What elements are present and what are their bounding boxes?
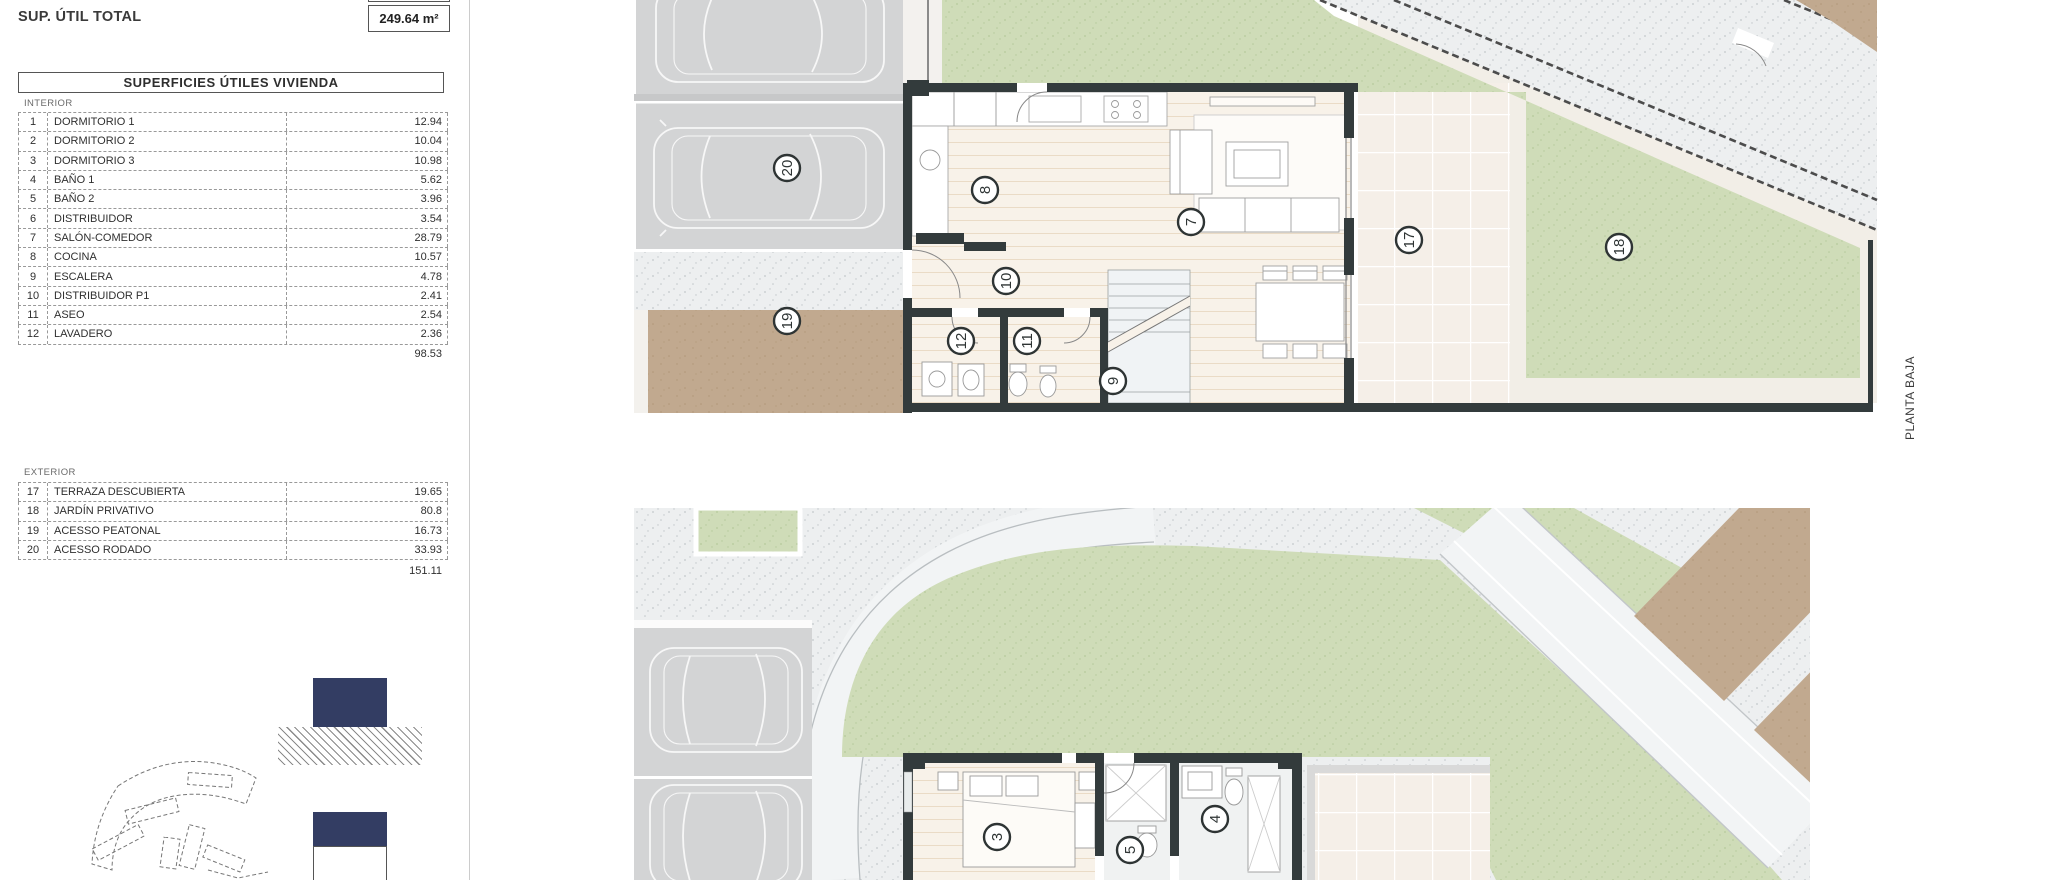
legend-elevation-block xyxy=(313,812,387,847)
row-label: ACESSO PEATONAL xyxy=(48,522,287,540)
row-label: DORMITORIO 2 xyxy=(48,132,287,150)
pavement-strip xyxy=(634,252,903,310)
green-patch xyxy=(696,508,800,554)
svg-text:17: 17 xyxy=(1401,232,1418,249)
sup-construida-label: SUP. CONSTRUIDA VIVIENDA xyxy=(18,0,230,3)
table-row: 5BAÑO 23.96 xyxy=(18,190,448,209)
panel-divider xyxy=(469,0,470,880)
room-marker: 11 xyxy=(1014,328,1040,354)
pedestrian-path xyxy=(634,310,903,413)
room-marker: 10 xyxy=(993,268,1019,294)
row-label: ESCALERA xyxy=(48,267,287,285)
legend-ground-hatch xyxy=(278,727,422,765)
room-marker: 18 xyxy=(1606,234,1632,260)
row-label: COCINA xyxy=(48,248,287,266)
room-marker: 7 xyxy=(1178,209,1204,235)
interior-section-label: INTERIOR xyxy=(24,98,73,109)
svg-text:8: 8 xyxy=(977,186,994,194)
row-number: 10 xyxy=(18,287,48,305)
svg-text:19: 19 xyxy=(779,313,796,330)
row-label: SALÓN-COMEDOR xyxy=(48,229,287,247)
svg-text:5: 5 xyxy=(1122,846,1139,854)
row-number: 5 xyxy=(18,190,48,208)
exterior-subtotal: 151.11 xyxy=(18,561,448,577)
svg-text:11: 11 xyxy=(1019,333,1036,349)
svg-text:10: 10 xyxy=(998,273,1015,290)
row-number: 7 xyxy=(18,229,48,247)
row-number: 11 xyxy=(18,306,48,324)
exterior-section-label: EXTERIOR xyxy=(24,467,76,478)
table-title: SUPERFICIES ÚTILES VIVIENDA xyxy=(18,72,444,93)
row-label: TERRAZA DESCUBIERTA xyxy=(48,483,287,501)
table-row: 2DORMITORIO 210.04 xyxy=(18,132,448,151)
row-label: ASEO xyxy=(48,306,287,324)
row-number: 1 xyxy=(18,113,48,131)
room-marker: 20 xyxy=(774,155,800,181)
row-value: 12.94 xyxy=(287,113,448,131)
parking-area xyxy=(634,0,903,252)
interior-subtotal: 98.53 xyxy=(18,344,448,360)
row-value: 4.78 xyxy=(287,267,448,285)
parking-area xyxy=(634,620,812,880)
row-number: 8 xyxy=(18,248,48,266)
table-row: 20ACESSO RODADO33.93 xyxy=(18,541,448,560)
row-number: 9 xyxy=(18,267,48,285)
row-value: 3.96 xyxy=(287,190,448,208)
room-marker: 5 xyxy=(1117,837,1143,863)
row-number: 3 xyxy=(18,152,48,170)
row-value: 5.62 xyxy=(287,171,448,189)
ground-floor-plan: 20198101211791718 xyxy=(634,0,1900,418)
row-label: BAÑO 1 xyxy=(48,171,287,189)
interior-table: 1DORMITORIO 112.942DORMITORIO 210.043DOR… xyxy=(18,112,448,345)
row-number: 19 xyxy=(18,522,48,540)
svg-text:4: 4 xyxy=(1207,815,1224,823)
row-value: 2.41 xyxy=(287,287,448,305)
svg-text:20: 20 xyxy=(779,160,796,177)
row-value: 10.04 xyxy=(287,132,448,150)
svg-text:18: 18 xyxy=(1611,239,1628,256)
table-row: 17TERRAZA DESCUBIERTA19.65 xyxy=(18,483,448,502)
table-row: 18JARDÍN PRIVATIVO80.8 xyxy=(18,502,448,521)
dining-set xyxy=(1256,266,1347,358)
table-row: 3DORMITORIO 310.98 xyxy=(18,152,448,171)
row-label: BAÑO 2 xyxy=(48,190,287,208)
row-number: 2 xyxy=(18,132,48,150)
row-number: 18 xyxy=(18,502,48,520)
sup-util-total-value: 249.64 m² xyxy=(368,5,450,32)
house-first-floor xyxy=(903,753,1490,880)
row-value: 10.98 xyxy=(287,152,448,170)
table-row: 12LAVADERO2.36 xyxy=(18,325,448,344)
row-value: 80.8 xyxy=(287,502,448,520)
room-marker: 19 xyxy=(774,308,800,334)
svg-text:7: 7 xyxy=(1183,218,1200,226)
terrace xyxy=(1358,83,1510,403)
row-value: 2.36 xyxy=(287,325,448,343)
row-value: 28.79 xyxy=(287,229,448,247)
table-row: 8COCINA10.57 xyxy=(18,248,448,267)
legend-section-block xyxy=(313,678,387,727)
sup-util-total-label: SUP. ÚTIL TOTAL xyxy=(18,9,141,25)
row-value: 19.65 xyxy=(287,483,448,501)
row-label: JARDÍN PRIVATIVO xyxy=(48,502,287,520)
table-row: 11ASEO2.54 xyxy=(18,306,448,325)
row-value: 3.54 xyxy=(287,209,448,227)
room-marker: 4 xyxy=(1202,806,1228,832)
table-row: 4BAÑO 15.62 xyxy=(18,171,448,190)
entry-walkway xyxy=(903,0,942,83)
row-label: DISTRIBUIDOR xyxy=(48,209,287,227)
table-row: 10DISTRIBUIDOR P12.41 xyxy=(18,287,448,306)
row-number: 6 xyxy=(18,209,48,227)
table-row: 1DORMITORIO 112.94 xyxy=(18,113,448,132)
planta-baja-label: PLANTA BAJA xyxy=(1903,330,1925,440)
legend-elevation-base xyxy=(313,846,387,880)
first-floor-plan: 354 xyxy=(634,508,1900,880)
exterior-table: 17TERRAZA DESCUBIERTA19.6518JARDÍN PRIVA… xyxy=(18,482,448,560)
site-key-plan xyxy=(88,752,273,880)
row-number: 17 xyxy=(18,483,48,501)
row-label: LAVADERO xyxy=(48,325,287,343)
svg-text:12: 12 xyxy=(953,333,970,350)
row-number: 12 xyxy=(18,325,48,343)
table-row: 7SALÓN-COMEDOR28.79 xyxy=(18,229,448,248)
row-number: 4 xyxy=(18,171,48,189)
architectural-sheet: SUP. CONSTRUIDA VIVIENDA SUP. ÚTIL TOTAL… xyxy=(0,0,2048,880)
table-row: 19ACESSO PEATONAL16.73 xyxy=(18,522,448,541)
svg-text:9: 9 xyxy=(1105,377,1122,385)
svg-text:3: 3 xyxy=(989,833,1006,841)
room-marker: 3 xyxy=(984,824,1010,850)
row-label: DORMITORIO 3 xyxy=(48,152,287,170)
table-row: 6DISTRIBUIDOR3.54 xyxy=(18,209,448,228)
room-marker: 9 xyxy=(1100,368,1126,394)
room-marker: 12 xyxy=(948,328,974,354)
row-value: 2.54 xyxy=(287,306,448,324)
row-value: 10.57 xyxy=(287,248,448,266)
row-number: 20 xyxy=(18,541,48,559)
room-marker: 17 xyxy=(1396,227,1422,253)
row-value: 33.93 xyxy=(287,541,448,559)
sup-construida-value-box xyxy=(368,0,450,2)
table-row: 9ESCALERA4.78 xyxy=(18,267,448,286)
row-label: DORMITORIO 1 xyxy=(48,113,287,131)
row-label: DISTRIBUIDOR P1 xyxy=(48,287,287,305)
row-value: 16.73 xyxy=(287,522,448,540)
room-marker: 8 xyxy=(972,177,998,203)
row-label: ACESSO RODADO xyxy=(48,541,287,559)
